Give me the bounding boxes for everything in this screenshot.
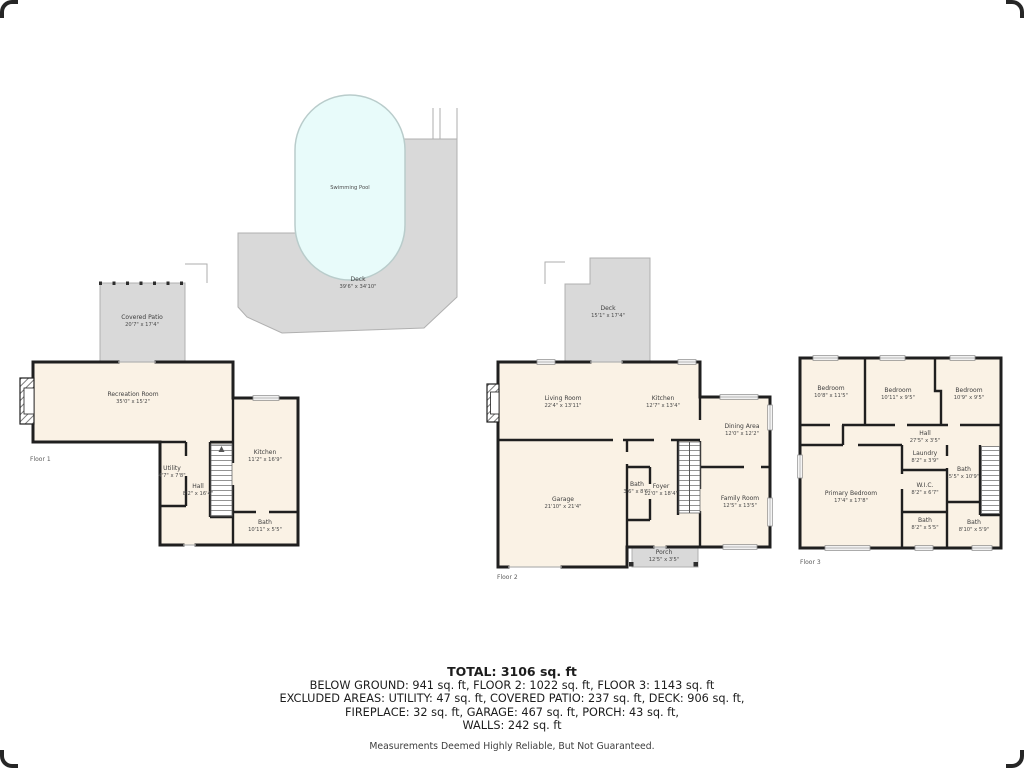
room-label-bedroom-2: Bedroom xyxy=(884,387,911,394)
covered-patio-area: Covered Patio 20'7" x 17'4" xyxy=(99,264,207,362)
room-label-kitchen-f1: Kitchen xyxy=(254,449,277,456)
floor2-label: Floor 2 xyxy=(497,574,518,581)
pool-deck-area: Swimming Pool Deck 39'6" x 34'10" xyxy=(238,95,457,333)
room-label-hall-f3: Hall xyxy=(919,430,931,437)
room-dims-hall-f1: 8'2" x 16'4" xyxy=(183,491,214,497)
excluded-area-line-2: FIREPLACE: 32 sq. ft, GARAGE: 467 sq. ft… xyxy=(0,706,1024,719)
room-dims-kitchen-f1: 11'2" x 16'9" xyxy=(248,457,282,463)
room-label-foyer: Foyer xyxy=(653,483,670,490)
room-label-hall-f1: Hall xyxy=(192,483,204,490)
floor2-fireplace-opening xyxy=(491,392,500,414)
excluded-area-line-1: EXCLUDED AREAS: UTILITY: 47 sq. ft, COVE… xyxy=(0,692,1024,705)
room-dims-garage: 21'10" x 21'4" xyxy=(544,504,581,510)
room-label-recreation: Recreation Room xyxy=(107,391,158,398)
floor2-deck-rail xyxy=(545,262,565,284)
covered-patio-rail xyxy=(185,264,207,283)
floor1-label: Floor 1 xyxy=(30,456,51,463)
room-label-bath-upper: Bath xyxy=(957,466,971,473)
room-label-bath-f1: Bath xyxy=(258,519,272,526)
room-label-laundry: Laundry xyxy=(913,450,938,457)
room-label-family-room: Family Room xyxy=(721,495,759,502)
total-area: TOTAL: 3106 sq. ft xyxy=(0,664,1024,679)
room-label-kitchen-f2: Kitchen xyxy=(652,395,675,402)
pool-deck-dims: 39'6" x 34'10" xyxy=(339,284,376,290)
room-label-primary-bedroom: Primary Bedroom xyxy=(825,490,877,497)
floors-area-line: BELOW GROUND: 941 sq. ft, FLOOR 2: 1022 … xyxy=(0,679,1024,692)
covered-patio-dims: 20'7" x 17'4" xyxy=(125,322,159,328)
room-dims-bath-f1: 10'11" x 5'5" xyxy=(248,527,282,533)
floor1-plan: Floor 1 Recreation Room 35'0" x 15'2" Ut… xyxy=(20,362,298,545)
room-dims-deck-f2: 15'1" x 17'4" xyxy=(591,313,625,319)
room-dims-wic: 8'2" x 6'7" xyxy=(911,490,938,496)
room-dims-laundry: 8'2" x 3'9" xyxy=(911,458,938,464)
room-dims-recreation: 35'0" x 15'2" xyxy=(116,399,150,405)
floor3-plan: Floor 3 Bedroom 10'8" x 11'5" Bedroom 10… xyxy=(798,356,1001,566)
floor3-label: Floor 3 xyxy=(800,559,821,566)
room-dims-bath-lower-right: 8'10" x 5'9" xyxy=(959,527,990,533)
room-label-garage: Garage xyxy=(552,496,574,503)
room-label-utility: Utility xyxy=(163,465,181,472)
room-label-dining-area: Dining Area xyxy=(724,423,759,430)
area-summary: TOTAL: 3106 sq. ft BELOW GROUND: 941 sq.… xyxy=(0,664,1024,752)
room-dims-kitchen-f2: 12'7" x 13'4" xyxy=(646,403,680,409)
floorplan-page: Swimming Pool Deck 39'6" x 34'10" Covere… xyxy=(0,0,1024,768)
room-dims-bedroom-1: 10'8" x 11'5" xyxy=(814,393,848,399)
walls-area-line: WALLS: 242 sq. ft xyxy=(0,719,1024,732)
floor2-plan: Floor 2 Deck 15'1" x 17'4" Living Room 2… xyxy=(487,258,772,581)
room-label-bath-lower-mid: Bath xyxy=(918,517,932,524)
floor3-stairs xyxy=(982,447,1000,514)
disclaimer-text: Measurements Deemed Highly Reliable, But… xyxy=(0,741,1024,752)
room-label-bedroom-3: Bedroom xyxy=(955,387,982,394)
room-dims-porch: 12'5" x 3'5" xyxy=(649,557,680,563)
room-label-porch: Porch xyxy=(656,549,673,556)
floor1-fireplace-opening xyxy=(24,388,34,414)
floor1-stairs xyxy=(211,444,232,516)
pool-deck-rails xyxy=(433,108,457,139)
room-dims-family-room: 12'5" x 13'5" xyxy=(723,503,757,509)
room-dims-living-room: 22'4" x 13'11" xyxy=(544,403,581,409)
room-dims-primary-bedroom: 17'4" x 17'8" xyxy=(834,498,868,504)
room-label-bath-f2: Bath xyxy=(630,481,644,488)
room-dims-bath-lower-mid: 8'2" x 5'5" xyxy=(911,525,938,531)
room-dims-bedroom-2: 10'11" x 9'5" xyxy=(881,395,915,401)
pool-deck-label: Deck xyxy=(350,276,366,283)
floor2-footprint xyxy=(498,362,770,567)
room-dims-bedroom-3: 10'9" x 9'5" xyxy=(954,395,985,401)
swimming-pool-label: Swimming Pool xyxy=(330,185,370,191)
room-dims-dining-area: 12'0" x 12'2" xyxy=(725,431,759,437)
room-label-deck-f2: Deck xyxy=(600,305,616,312)
room-dims-foyer: 12'0" x 18'4" xyxy=(644,491,678,497)
room-label-bath-lower-right: Bath xyxy=(967,519,981,526)
floorplan-canvas: Swimming Pool Deck 39'6" x 34'10" Covere… xyxy=(0,0,1024,768)
covered-patio-label: Covered Patio xyxy=(121,314,163,321)
room-label-living-room: Living Room xyxy=(545,395,582,402)
screen-corner-top-left xyxy=(0,0,18,18)
room-label-wic: W.I.C. xyxy=(917,482,934,489)
room-dims-hall-f3: 27'5" x 3'5" xyxy=(910,438,941,444)
room-dims-bath-upper: 5'5" x 10'9" xyxy=(949,474,980,480)
room-label-bedroom-1: Bedroom xyxy=(817,385,844,392)
room-dims-utility: 4'7" x 7'8" xyxy=(158,473,185,479)
